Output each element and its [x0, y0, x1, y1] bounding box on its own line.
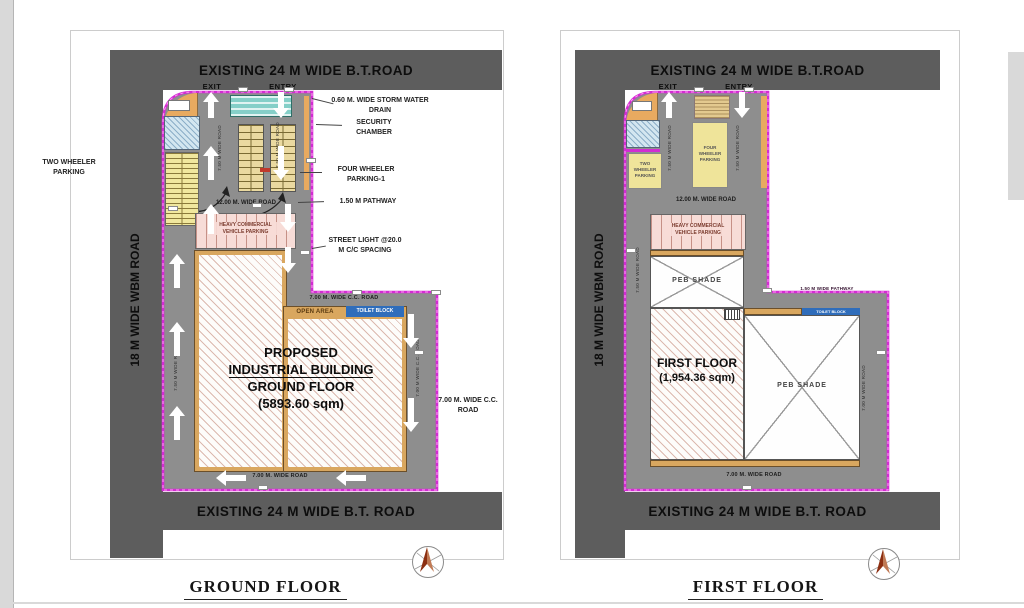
- gf-entry-arrow: [273, 92, 289, 118]
- ff-heavy-parking-label: HEAVY COMMERCIAL VEHICLE PARKING: [665, 223, 731, 236]
- gf-entry-label: ENTRY: [262, 82, 304, 91]
- gf-building-line2: INDUSTRIAL BUILDING: [229, 362, 374, 378]
- ff-four-wheeler-box: FOUR WHEELER PARKING: [692, 122, 728, 188]
- scan-edge-left: [0, 0, 14, 608]
- gf-exit-label: EXIT: [196, 82, 228, 91]
- ff-left-road-label: 18 M WIDE WBM ROAD: [592, 190, 608, 410]
- dimension-tag: [258, 485, 268, 490]
- gf-left-lane-arrow: [170, 406, 184, 440]
- gf-ann-storm-drain: 0.60 M. WIDE STORM WATER DRAIN: [330, 96, 430, 116]
- dimension-tag: [431, 290, 441, 295]
- ff-exit-arrow: [661, 92, 677, 118]
- gf-stall-marker: [260, 168, 270, 172]
- ff-internal-top-road-label: 12.00 M. WIDE ROAD: [668, 197, 744, 203]
- ff-floor-line2: (1,954.36 sqm): [651, 371, 743, 386]
- gf-ann-four-wheeler: FOUR WHEELER PARKING-1: [322, 165, 410, 185]
- gf-stall-column: [238, 124, 264, 192]
- dimension-tag: [876, 350, 886, 355]
- dimension-tag: [414, 350, 424, 355]
- site-plan-drawing: EXISTING 24 M WIDE B.T.ROAD 18 M WIDE WB…: [0, 0, 1024, 608]
- gf-cc-road-label: 7.00 M. WIDE C.C. ROAD: [288, 295, 400, 301]
- dimension-tag: [626, 248, 636, 253]
- dimension-tag: [300, 250, 310, 255]
- ff-pathway-label: 1.50 M WIDE PATHWAY: [788, 286, 866, 291]
- ff-title: FIRST FLOOR: [658, 577, 853, 600]
- dimension-tag: [168, 206, 178, 211]
- gf-left-road-label: 18 M WIDE WBM ROAD: [128, 190, 144, 410]
- gf-two-wheeler-stalls: [165, 152, 199, 226]
- dimension-tag: [694, 87, 704, 92]
- scan-edge-bottom: [0, 602, 1024, 604]
- ff-gate-structure: [694, 95, 730, 119]
- gf-heavy-parking-label: HEAVY COMMERCIAL VEHICLE PARKING: [211, 222, 280, 235]
- leader-line: [300, 172, 322, 173]
- gf-building-line1: PROPOSED: [212, 344, 390, 361]
- scan-edge-right: [1008, 52, 1024, 200]
- ff-peb-shade-right: PEB SHADE: [744, 315, 860, 460]
- stairs-icon: [724, 309, 740, 320]
- ff-bottom-road-label: EXISTING 24 M WIDE B.T. ROAD: [575, 492, 940, 530]
- gf-bottom-internal-road-label: 7.00 M. WIDE ROAD: [238, 473, 322, 479]
- gf-gate-cabin: [168, 100, 190, 111]
- gf-entry-arrow: [280, 247, 296, 273]
- dimension-tag: [762, 288, 772, 293]
- dimension-tag: [742, 485, 752, 490]
- gf-building-line4: (5893.60 sqm): [212, 395, 390, 412]
- ff-building-band: [744, 308, 802, 315]
- gf-exit-arrow: [203, 146, 219, 180]
- ff-exit-label: EXIT: [652, 82, 684, 91]
- gf-drain-strip: [304, 96, 309, 190]
- gf-left-lane-arrow: [170, 322, 184, 356]
- ff-peb-shade-top-label: PEB SHADE: [651, 277, 743, 284]
- ff-drain-strip: [761, 96, 767, 188]
- ff-peb-shade-top: PEB SHADE: [650, 256, 744, 308]
- gf-bottom-road-label: EXISTING 24 M WIDE B.T. ROAD: [110, 492, 502, 530]
- gf-top-road-label: EXISTING 24 M WIDE B.T.ROAD: [110, 50, 502, 90]
- gf-right-lane-arrow: [404, 314, 418, 348]
- gf-ann-street-light: STREET LIGHT @20.0 M C/C SPACING: [326, 236, 404, 256]
- gf-entry-arrow: [280, 204, 296, 232]
- gf-open-area-label: OPEN AREA: [286, 307, 344, 317]
- ff-floor-line1: FIRST FLOOR: [651, 356, 743, 371]
- gf-toilet-block-strip: TOILET BLOCK: [346, 306, 404, 317]
- ff-entry-arrow: [734, 92, 750, 118]
- gf-entry-arrow: [273, 146, 289, 180]
- dimension-tag: [744, 87, 754, 92]
- gf-ann-cc-road: 7.00 M. WIDE C.C. ROAD: [432, 396, 504, 416]
- gf-right-lane-arrow: [404, 398, 418, 432]
- ff-toilet-block-strip: TOILET BLOCK: [802, 308, 860, 315]
- north-compass-icon: [866, 546, 902, 582]
- ff-right-lane-label: 7.00 M WIDE ROAD: [861, 348, 871, 428]
- ff-building-band: [650, 460, 860, 467]
- ff-exit-lane-label: 7.50 M WIDE ROAD: [667, 118, 677, 178]
- gf-bottom-lane-arrow: [216, 472, 246, 484]
- ff-floor-label: FIRST FLOOR (1,954.36 sqm): [651, 356, 743, 386]
- dimension-tag: [306, 158, 316, 163]
- gf-water-tank-block: [164, 116, 200, 150]
- gf-internal-top-road-label: 12.00 M. WIDE ROAD: [208, 200, 284, 206]
- dimension-tag: [352, 290, 362, 295]
- gf-building-line3: GROUND FLOOR: [212, 378, 390, 395]
- ff-wall-line: [626, 149, 660, 152]
- gf-bottom-lane-arrow: [336, 472, 366, 484]
- gf-title: GROUND FLOOR: [168, 577, 363, 600]
- ff-heavy-parking: HEAVY COMMERCIAL VEHICLE PARKING: [650, 214, 746, 250]
- gf-ann-security-chamber: SECURITY CHAMBER: [342, 118, 406, 138]
- north-compass-icon: [410, 544, 446, 580]
- dimension-tag: [252, 203, 262, 208]
- ff-gate-cabin: [632, 101, 652, 111]
- ff-two-wheeler-box: TWO WHEELER PARKING: [628, 153, 662, 189]
- gf-ann-pathway: 1.50 M PATHWAY: [322, 197, 414, 207]
- ff-water-tank-block: [626, 120, 660, 148]
- ff-peb-shade-right-label: PEB SHADE: [745, 382, 859, 389]
- ff-bottom-internal-road-label: 7.00 M. WIDE ROAD: [712, 472, 796, 478]
- dimension-tag: [284, 87, 294, 92]
- gf-ann-two-wheeler: TWO WHEELER PARKING: [30, 158, 108, 178]
- ff-left-lane-label: 7.50 M WIDE ROAD: [635, 225, 645, 315]
- ff-entry-lane-label: 7.50 M WIDE ROAD: [735, 118, 745, 178]
- gf-exit-arrow: [203, 92, 219, 118]
- dimension-tag: [238, 87, 248, 92]
- gf-building-title: PROPOSED INDUSTRIAL BUILDING GROUND FLOO…: [212, 344, 390, 412]
- gf-exit-arrow: [203, 204, 219, 234]
- gf-left-lane-arrow: [170, 254, 184, 288]
